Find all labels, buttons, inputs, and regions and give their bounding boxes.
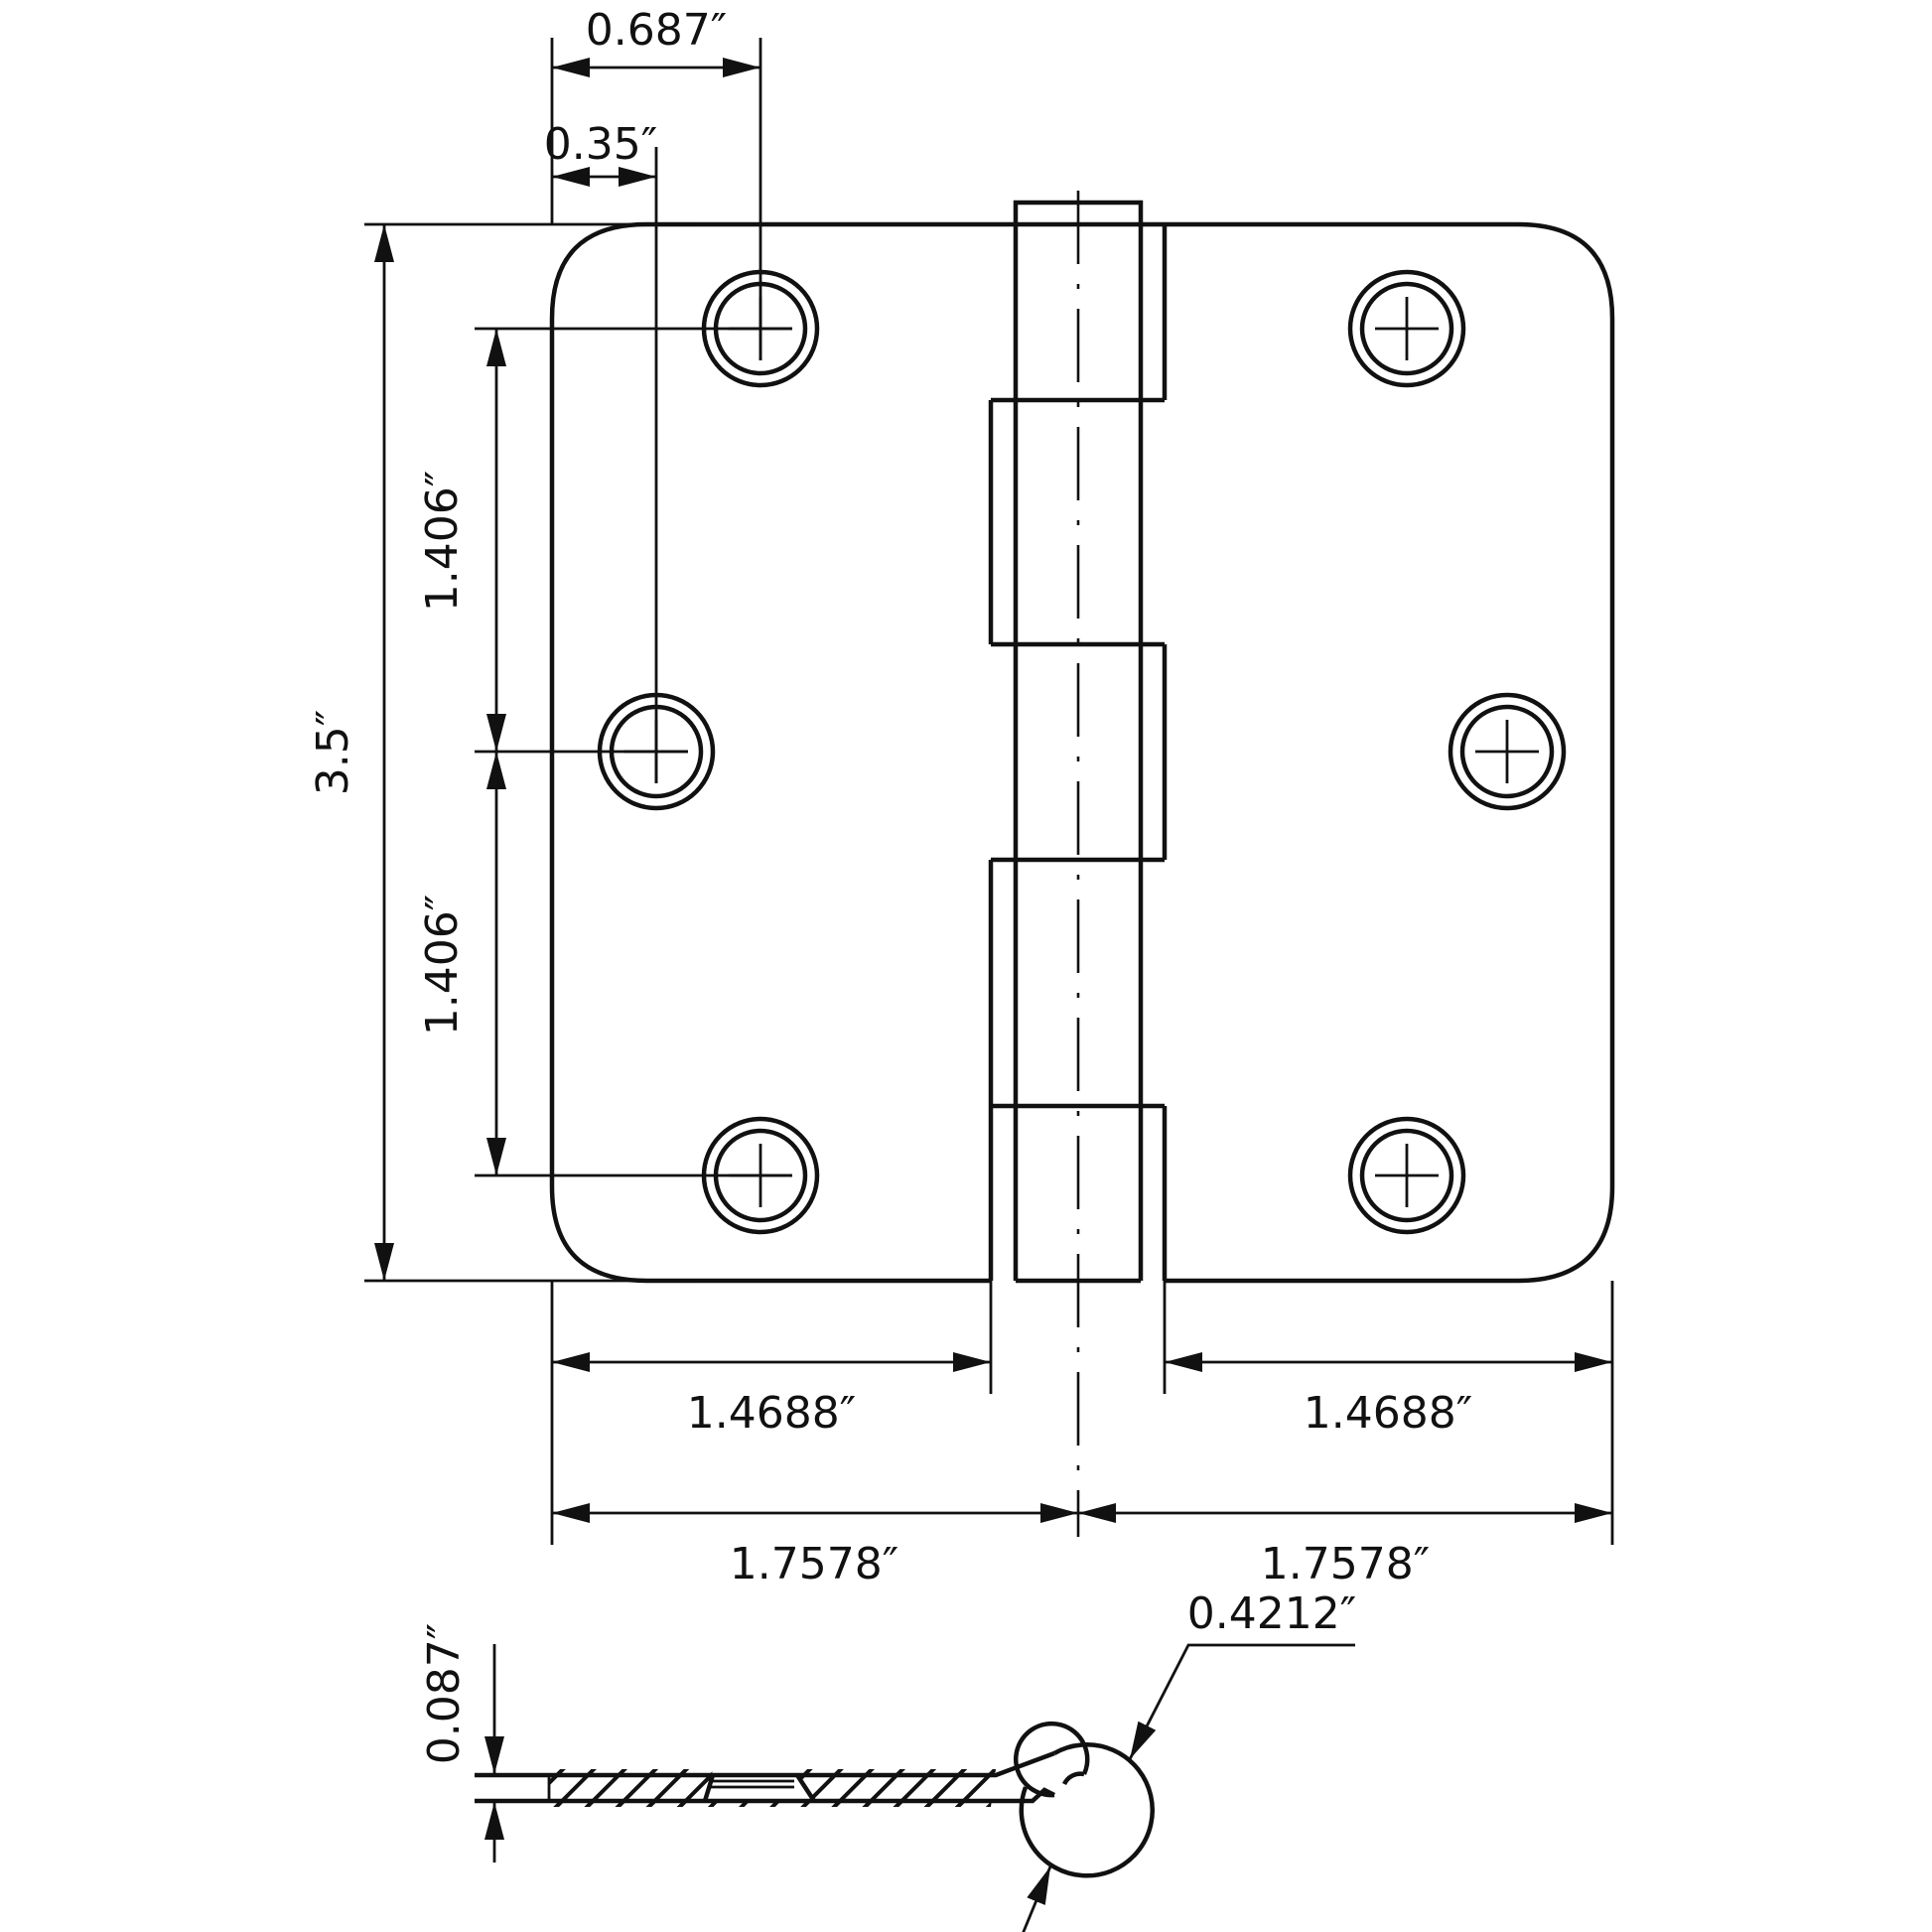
left-extension-lines [364,224,792,1281]
dim-label-leaf-total-right: 1.7578″ [1261,1539,1430,1589]
thickness-dimension: 0.087″ [419,1623,494,1863]
dim-label-thickness: 0.087″ [419,1623,470,1764]
dim-label-leaf-total-left: 1.7578″ [730,1539,898,1589]
screw-hole-right-bottom [1350,1119,1463,1232]
dimension-labels: 0.687″ 0.35″ 3.5″ 1.406″ 1.406″ 1.4688″ … [308,5,1472,1589]
dim-label-leaf-height: 3.5″ [308,710,358,795]
curl-inner-arc [1016,1724,1087,1795]
countersink-hole-lines [709,1781,794,1787]
hinge-dimension-drawing: 0.687″ 0.35″ 3.5″ 1.406″ 1.406″ 1.4688″ … [0,0,1932,1932]
hinge-technical-drawing-page: 0.687″ 0.35″ 3.5″ 1.406″ 1.406″ 1.4688″ … [0,0,1932,1932]
hinge-face-view: 0.687″ 0.35″ 3.5″ 1.406″ 1.406″ 1.4688″ … [308,5,1612,1589]
knuckle-diameter-leader [1130,1645,1355,1759]
dimension-lines [384,68,1612,1513]
curl-bottom-leader [1023,1866,1050,1932]
right-leaf-outline [1141,224,1612,1281]
hinge-barrel [991,191,1165,1537]
screw-holes [600,272,1564,1232]
dim-label-hole-spacing-upper: 1.406″ [417,471,468,612]
dim-label-knuckle-diameter: 0.4212″ [1187,1588,1356,1639]
dim-label-leaf-flat-right: 1.4688″ [1304,1388,1472,1439]
dim-label-hole-offset-middle: 0.35″ [544,119,657,170]
dim-label-leaf-flat-left: 1.4688″ [687,1388,856,1439]
dim-label-hole-offset-top: 0.687″ [586,5,727,56]
screw-hole-right-middle [1450,695,1564,808]
screw-hole-right-top [1350,272,1463,385]
hinge-section-view: 0.087″ 0.4212″ [419,1588,1356,1932]
dim-label-hole-spacing-lower: 1.406″ [417,895,468,1035]
knuckle-diameter-callout: 0.4212″ [1130,1588,1356,1759]
curl-spiral-hook [1064,1774,1084,1784]
